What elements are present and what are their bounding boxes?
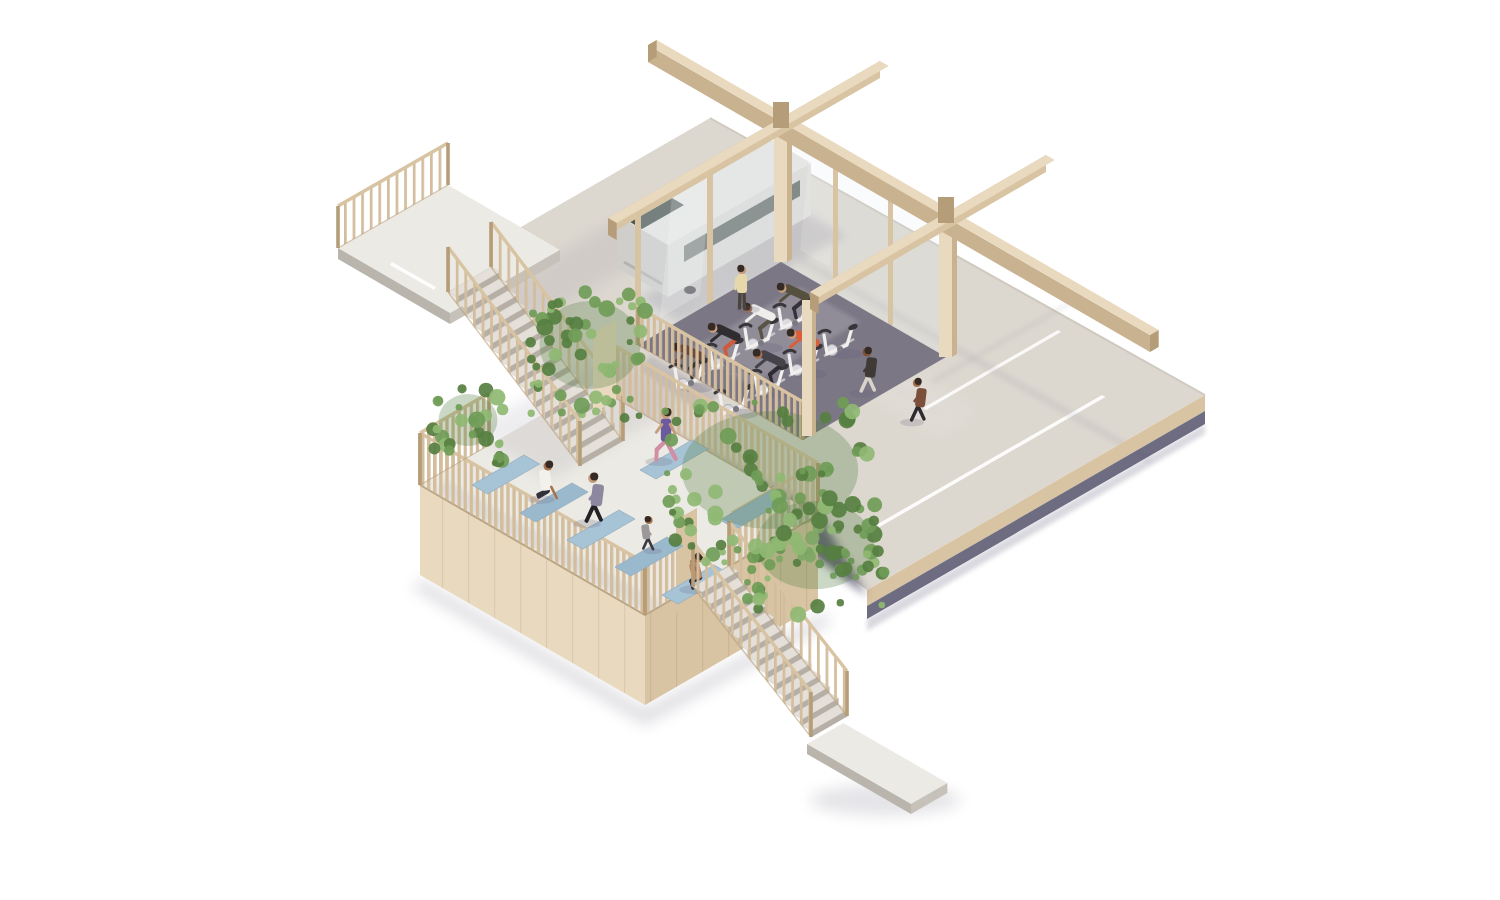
vine-leaf-cluster	[879, 602, 886, 609]
vine-leaf-cluster	[669, 509, 676, 516]
vine-leaf-cluster	[598, 363, 608, 373]
railing-post	[578, 421, 582, 466]
figure-hair	[753, 349, 761, 357]
vine-leaf-cluster	[428, 443, 440, 455]
vine-leaf-cluster	[841, 550, 850, 559]
vine-leaf-cluster	[862, 561, 874, 573]
vine-leaf-cluster	[811, 512, 828, 529]
vine-leaf-cluster	[810, 599, 825, 614]
vine-leaf-cluster	[680, 468, 692, 480]
vine-leaf-cluster	[772, 497, 788, 513]
figure-hair	[645, 516, 651, 522]
glazing-post	[833, 154, 838, 294]
vine-leaf-cluster	[668, 485, 677, 494]
vine-leaf-cluster	[802, 502, 815, 515]
figure-hair	[865, 347, 872, 354]
vine-leaf-cluster	[528, 410, 535, 417]
vine-leaf-cluster	[734, 546, 741, 553]
vine-leaf-cluster	[687, 492, 702, 507]
timber-post	[802, 300, 816, 436]
vine-leaf-cluster	[589, 390, 603, 404]
vine-leaf-cluster	[701, 557, 710, 566]
vine-leaf-cluster	[672, 417, 682, 427]
figure-hair	[708, 323, 716, 331]
vine-leaf-cluster	[727, 534, 739, 546]
figure-hair	[590, 472, 598, 480]
vine-leaf-cluster	[766, 508, 772, 514]
vine-leaf-cluster	[783, 513, 797, 527]
vine-leaf-cluster	[837, 397, 849, 409]
figure-torso	[737, 274, 747, 293]
vine-leaf-cluster	[668, 533, 682, 547]
vine-leaf-cluster	[790, 606, 806, 622]
glazing-post	[707, 164, 713, 304]
vine-leaf-cluster	[457, 384, 466, 393]
vine-leaf-cluster	[598, 300, 615, 317]
vine-leaf-cluster	[525, 337, 536, 348]
figure-limb	[744, 293, 745, 308]
figure-hair	[737, 265, 744, 272]
vine-leaf-cluster	[869, 516, 879, 526]
railing-post	[446, 247, 450, 292]
vine-leaf-cluster	[542, 362, 556, 376]
beam-junction	[938, 197, 954, 223]
vine-leaf-cluster	[555, 389, 567, 401]
vine-leaf-cluster	[456, 404, 462, 410]
vine-leaf-cluster	[863, 550, 871, 558]
railing-post	[489, 222, 493, 267]
vine-leaf-cluster	[536, 319, 553, 336]
vine-leaf-cluster	[859, 446, 875, 462]
railing-post	[446, 143, 450, 185]
vine-leaf-cluster	[684, 524, 696, 536]
vine-leaf-cluster	[637, 303, 653, 319]
vine-leaf-cluster	[694, 404, 705, 415]
figure-hair	[545, 460, 553, 468]
vine-leaf-cluster	[664, 470, 670, 476]
figure-limb	[760, 328, 762, 337]
vine-leaf-cluster	[455, 414, 468, 427]
vine-leaf-cluster	[527, 355, 536, 364]
vine-leaf-cluster	[764, 559, 775, 570]
vine-leaf-cluster	[661, 407, 668, 414]
vine-leaf-cluster	[752, 592, 765, 605]
vine-leaf-cluster	[627, 339, 633, 345]
vine-leaf-cluster	[489, 389, 506, 406]
vine-leaf-cluster	[534, 379, 542, 387]
vine-leaf-cluster	[853, 574, 859, 580]
vine-leaf-cluster	[776, 525, 792, 541]
vine-leaf-cluster	[478, 431, 494, 447]
vine-leaf-cluster	[574, 397, 590, 413]
vine-leaf-cluster	[755, 477, 764, 486]
vine-leaf-cluster	[844, 496, 861, 513]
vine-leaf-cluster	[830, 572, 837, 579]
lower-stair-landing-pad	[807, 723, 960, 816]
vine-leaf-cluster	[867, 497, 882, 512]
figure-limb	[736, 278, 737, 289]
vine-leaf-cluster	[776, 472, 786, 482]
vine-leaf-cluster	[822, 490, 838, 506]
vine-leaf-cluster	[759, 543, 775, 559]
vine-leaf-cluster	[765, 575, 771, 581]
railing-post	[336, 206, 340, 248]
vine-leaf-cluster	[492, 460, 498, 466]
vine-leaf-cluster	[820, 412, 832, 424]
vine-leaf-cluster	[720, 428, 737, 445]
vine-leaf-cluster	[575, 348, 587, 360]
figure-hair	[787, 329, 795, 337]
vine-leaf-cluster	[620, 413, 630, 423]
vine-leaf-cluster	[665, 433, 679, 447]
vine-leaf-cluster	[818, 470, 825, 477]
vine-leaf-cluster	[586, 329, 597, 340]
vine-leaf-cluster	[622, 288, 636, 302]
vine-leaf-cluster	[444, 445, 454, 455]
vine-leaf-cluster	[636, 412, 643, 419]
vine-leaf-cluster	[731, 442, 742, 453]
figure-limb	[740, 293, 741, 308]
vine-leaf-cluster	[816, 544, 826, 554]
vine-leaf-cluster	[628, 302, 636, 310]
vine-leaf-cluster	[860, 530, 869, 539]
vine-leaf-cluster	[745, 454, 754, 463]
vine-leaf-cluster	[468, 412, 485, 429]
vine-leaf-cluster	[548, 300, 557, 309]
vine-leaf-cluster	[529, 309, 537, 317]
vine-leaf-cluster	[544, 335, 555, 346]
vine-leaf-cluster	[827, 526, 836, 535]
figure-hair	[777, 283, 785, 291]
vine-leaf-cluster	[826, 465, 833, 472]
vine-leaf-cluster	[568, 328, 582, 342]
figure-shadow	[645, 457, 673, 466]
vine-leaf-cluster	[708, 401, 719, 412]
vine-leaf-cluster	[433, 396, 444, 407]
figure-limb	[794, 308, 796, 317]
vine-leaf-cluster	[752, 399, 758, 405]
vine-leaf-cluster	[879, 567, 890, 578]
vine-leaf-cluster	[558, 409, 566, 417]
vine-leaf-cluster	[721, 559, 727, 565]
vine-leaf-cluster	[688, 542, 696, 550]
vine-leaf-cluster	[612, 385, 621, 394]
vine-leaf-cluster	[781, 415, 793, 427]
vine-leaf-cluster	[578, 285, 592, 299]
vine-leaf-cluster	[744, 579, 751, 586]
railing-post	[418, 433, 422, 485]
vine-leaf-cluster	[716, 540, 727, 551]
vine-leaf-cluster	[549, 348, 563, 362]
render-canvas	[0, 0, 1500, 900]
vine-leaf-cluster	[627, 396, 634, 403]
vine-leaf-cluster	[433, 425, 442, 434]
vine-leaf-cluster	[835, 563, 849, 577]
vine-leaf-cluster	[662, 495, 675, 508]
vine-leaf-cluster	[626, 316, 634, 324]
figure-hair	[915, 378, 922, 385]
railing-post	[809, 692, 813, 737]
architectural-axonometric-render	[0, 0, 1500, 900]
vine-leaf-cluster	[469, 430, 477, 438]
beam-junction	[773, 102, 789, 128]
vine-leaf-cluster	[634, 325, 648, 339]
figure-limb	[656, 450, 657, 460]
vine-leaf-cluster	[592, 407, 600, 415]
vine-leaf-cluster	[616, 298, 623, 305]
vine-leaf-cluster	[631, 353, 644, 366]
vine-leaf-cluster	[742, 593, 753, 604]
railing-post	[845, 671, 849, 716]
vine-leaf-cluster	[872, 545, 884, 557]
vine-leaf-cluster	[708, 485, 723, 500]
vine-leaf-cluster	[837, 599, 844, 606]
vine-leaf-cluster	[792, 540, 807, 555]
vine-leaf-cluster	[707, 506, 723, 522]
vine-leaf-cluster	[799, 468, 805, 474]
railing-post	[643, 563, 647, 615]
vine-leaf-cluster	[495, 440, 504, 449]
vine-leaf-cluster	[747, 565, 756, 574]
vine-leaf-cluster	[532, 363, 540, 371]
